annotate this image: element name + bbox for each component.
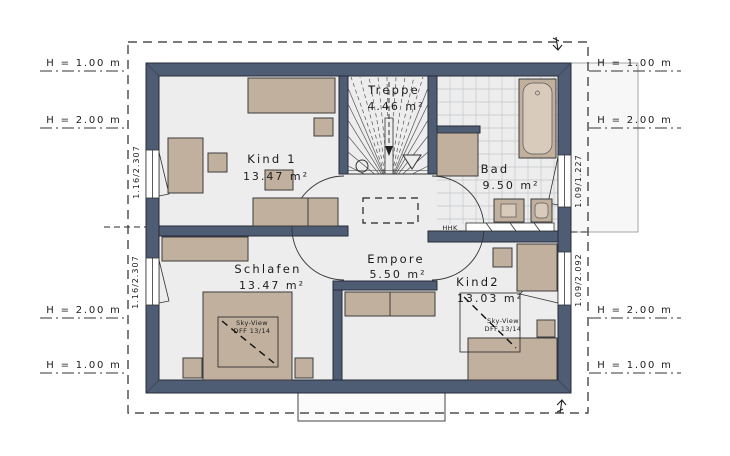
bathtub bbox=[519, 79, 556, 158]
room-area-schlafen: 13.47 m² bbox=[239, 279, 305, 292]
sofa bbox=[253, 198, 338, 226]
room-name-empore: Empore bbox=[367, 252, 425, 266]
dresser bbox=[162, 237, 248, 261]
table bbox=[493, 248, 512, 267]
room-area-treppe: 4.46 m² bbox=[367, 100, 424, 113]
nightstand bbox=[537, 320, 555, 337]
h-label: H = 1.00 m bbox=[597, 58, 672, 69]
room-area-kind1: 13.47 m² bbox=[243, 170, 309, 183]
wall-schlafen-kind2 bbox=[333, 290, 342, 380]
wall-kind1-treppe bbox=[339, 76, 348, 174]
shower bbox=[437, 133, 478, 176]
h-label: H = 1.00 m bbox=[46, 360, 121, 371]
washbasin bbox=[494, 199, 524, 222]
floor-plan-drawing: Sky-View DFF 13/14 HHK bbox=[0, 0, 730, 456]
h-label: H = 2.00 m bbox=[46, 115, 121, 126]
toilet bbox=[531, 199, 552, 222]
room-name-schlafen: Schlafen bbox=[234, 262, 301, 276]
towel-radiator bbox=[466, 223, 554, 231]
window-size-label: 1.16/2.307 bbox=[132, 145, 141, 198]
skyview-label: DFF 13/14 bbox=[234, 327, 271, 335]
downpipe-icon bbox=[553, 37, 562, 50]
floor-plan-page: Sky-View DFF 13/14 HHK bbox=[0, 0, 730, 456]
wall-kind1-schlafen bbox=[159, 226, 348, 236]
nightstand bbox=[295, 358, 313, 378]
wardrobe bbox=[168, 138, 203, 193]
bed bbox=[468, 338, 557, 380]
wall-shower-stub bbox=[437, 126, 480, 133]
room-area-bad: 9.50 m² bbox=[482, 179, 539, 192]
wall-empore-kind2 bbox=[333, 281, 437, 290]
room-name-treppe: Treppe bbox=[367, 83, 420, 97]
h-label: H = 1.00 m bbox=[597, 360, 672, 371]
room-area-empore: 5.50 m² bbox=[369, 268, 426, 281]
h-label: H = 2.00 m bbox=[46, 305, 121, 316]
canopy-outline bbox=[298, 393, 445, 421]
room-name-kind2: Kind2 bbox=[456, 275, 500, 289]
heater-label: HHK bbox=[442, 224, 458, 232]
window-size-label: 1.09/2.092 bbox=[574, 253, 583, 306]
nightstand bbox=[183, 358, 202, 378]
window-size-label: 1.16/2.307 bbox=[131, 255, 140, 308]
room-name-kind1: Kind 1 bbox=[247, 152, 297, 166]
h-label: H = 2.00 m bbox=[597, 115, 672, 126]
h-label: H = 2.00 m bbox=[597, 305, 672, 316]
room-name-bad: Bad bbox=[481, 162, 510, 176]
desk bbox=[248, 78, 335, 113]
downpipe-icon bbox=[557, 400, 566, 413]
room-area-kind2: 13.03 m² bbox=[457, 292, 523, 305]
h-label: H = 1.00 m bbox=[46, 58, 121, 69]
wall-bad-kind2 bbox=[428, 231, 558, 242]
wardrobe bbox=[517, 244, 557, 291]
chair bbox=[314, 118, 333, 136]
skyview-label: DFF 13/14 bbox=[485, 325, 522, 333]
wall-treppe-bad bbox=[428, 76, 437, 174]
window-size-label: 1.09/1.227 bbox=[574, 154, 583, 207]
skyview-label: Sky-View bbox=[487, 317, 519, 325]
side-box bbox=[208, 153, 227, 172]
skyview-label: Sky-View bbox=[236, 319, 268, 327]
